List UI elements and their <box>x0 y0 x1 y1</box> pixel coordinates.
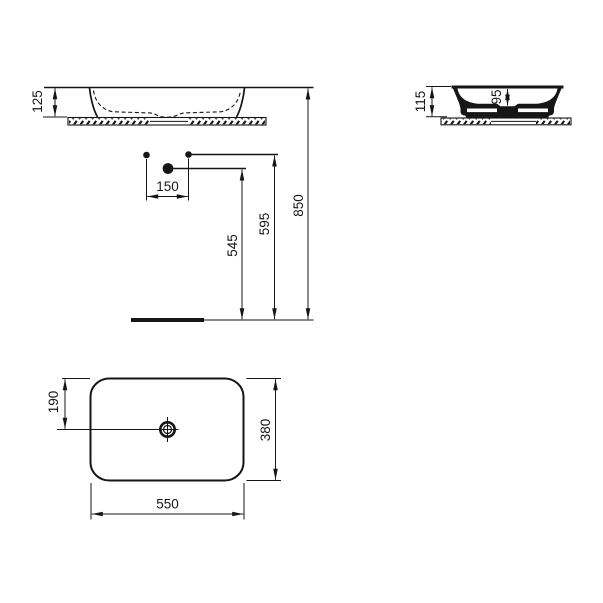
drain-center-dot <box>163 163 174 174</box>
dim-595-label: 595 <box>257 213 272 236</box>
dim-380-label: 380 <box>258 419 273 442</box>
dim-850-label: 850 <box>291 194 306 217</box>
dim-190-label: 190 <box>46 391 61 414</box>
dim-150-label: 150 <box>156 179 179 194</box>
side-under-bowl-gap-left <box>467 109 497 113</box>
dim-545: 545 <box>225 170 242 320</box>
front-view: 125 <box>30 88 314 126</box>
dim-125: 125 <box>30 88 67 117</box>
side-under-bowl-gap-right <box>518 109 548 113</box>
dim-595: 595 <box>257 156 275 320</box>
side-countertop <box>441 118 571 125</box>
dim-190: 190 <box>46 379 90 429</box>
technical-drawing: 125 115 95 <box>0 0 603 603</box>
dim-550: 550 <box>91 483 244 520</box>
top-view: 190 380 550 <box>46 379 281 520</box>
front-countertop <box>68 118 266 126</box>
side-view: 115 95 <box>413 86 571 125</box>
dim-125-label: 125 <box>30 90 45 113</box>
dim-95-label: 95 <box>489 89 504 104</box>
dim-115: 115 <box>413 87 451 117</box>
front-basin-inner-dashed <box>94 91 241 118</box>
dim-550-label: 550 <box>156 497 179 512</box>
technical-drawing-page: 125 115 95 <box>0 0 603 603</box>
dim-115-label: 115 <box>413 91 428 113</box>
fixing-hole-right-dot <box>185 151 192 158</box>
dim-545-label: 545 <box>225 234 240 257</box>
fixing-hole-left-dot <box>143 152 150 159</box>
front-basin-right-wall <box>237 88 245 117</box>
dim-850: 850 <box>291 89 308 320</box>
dim-380: 380 <box>247 379 282 481</box>
